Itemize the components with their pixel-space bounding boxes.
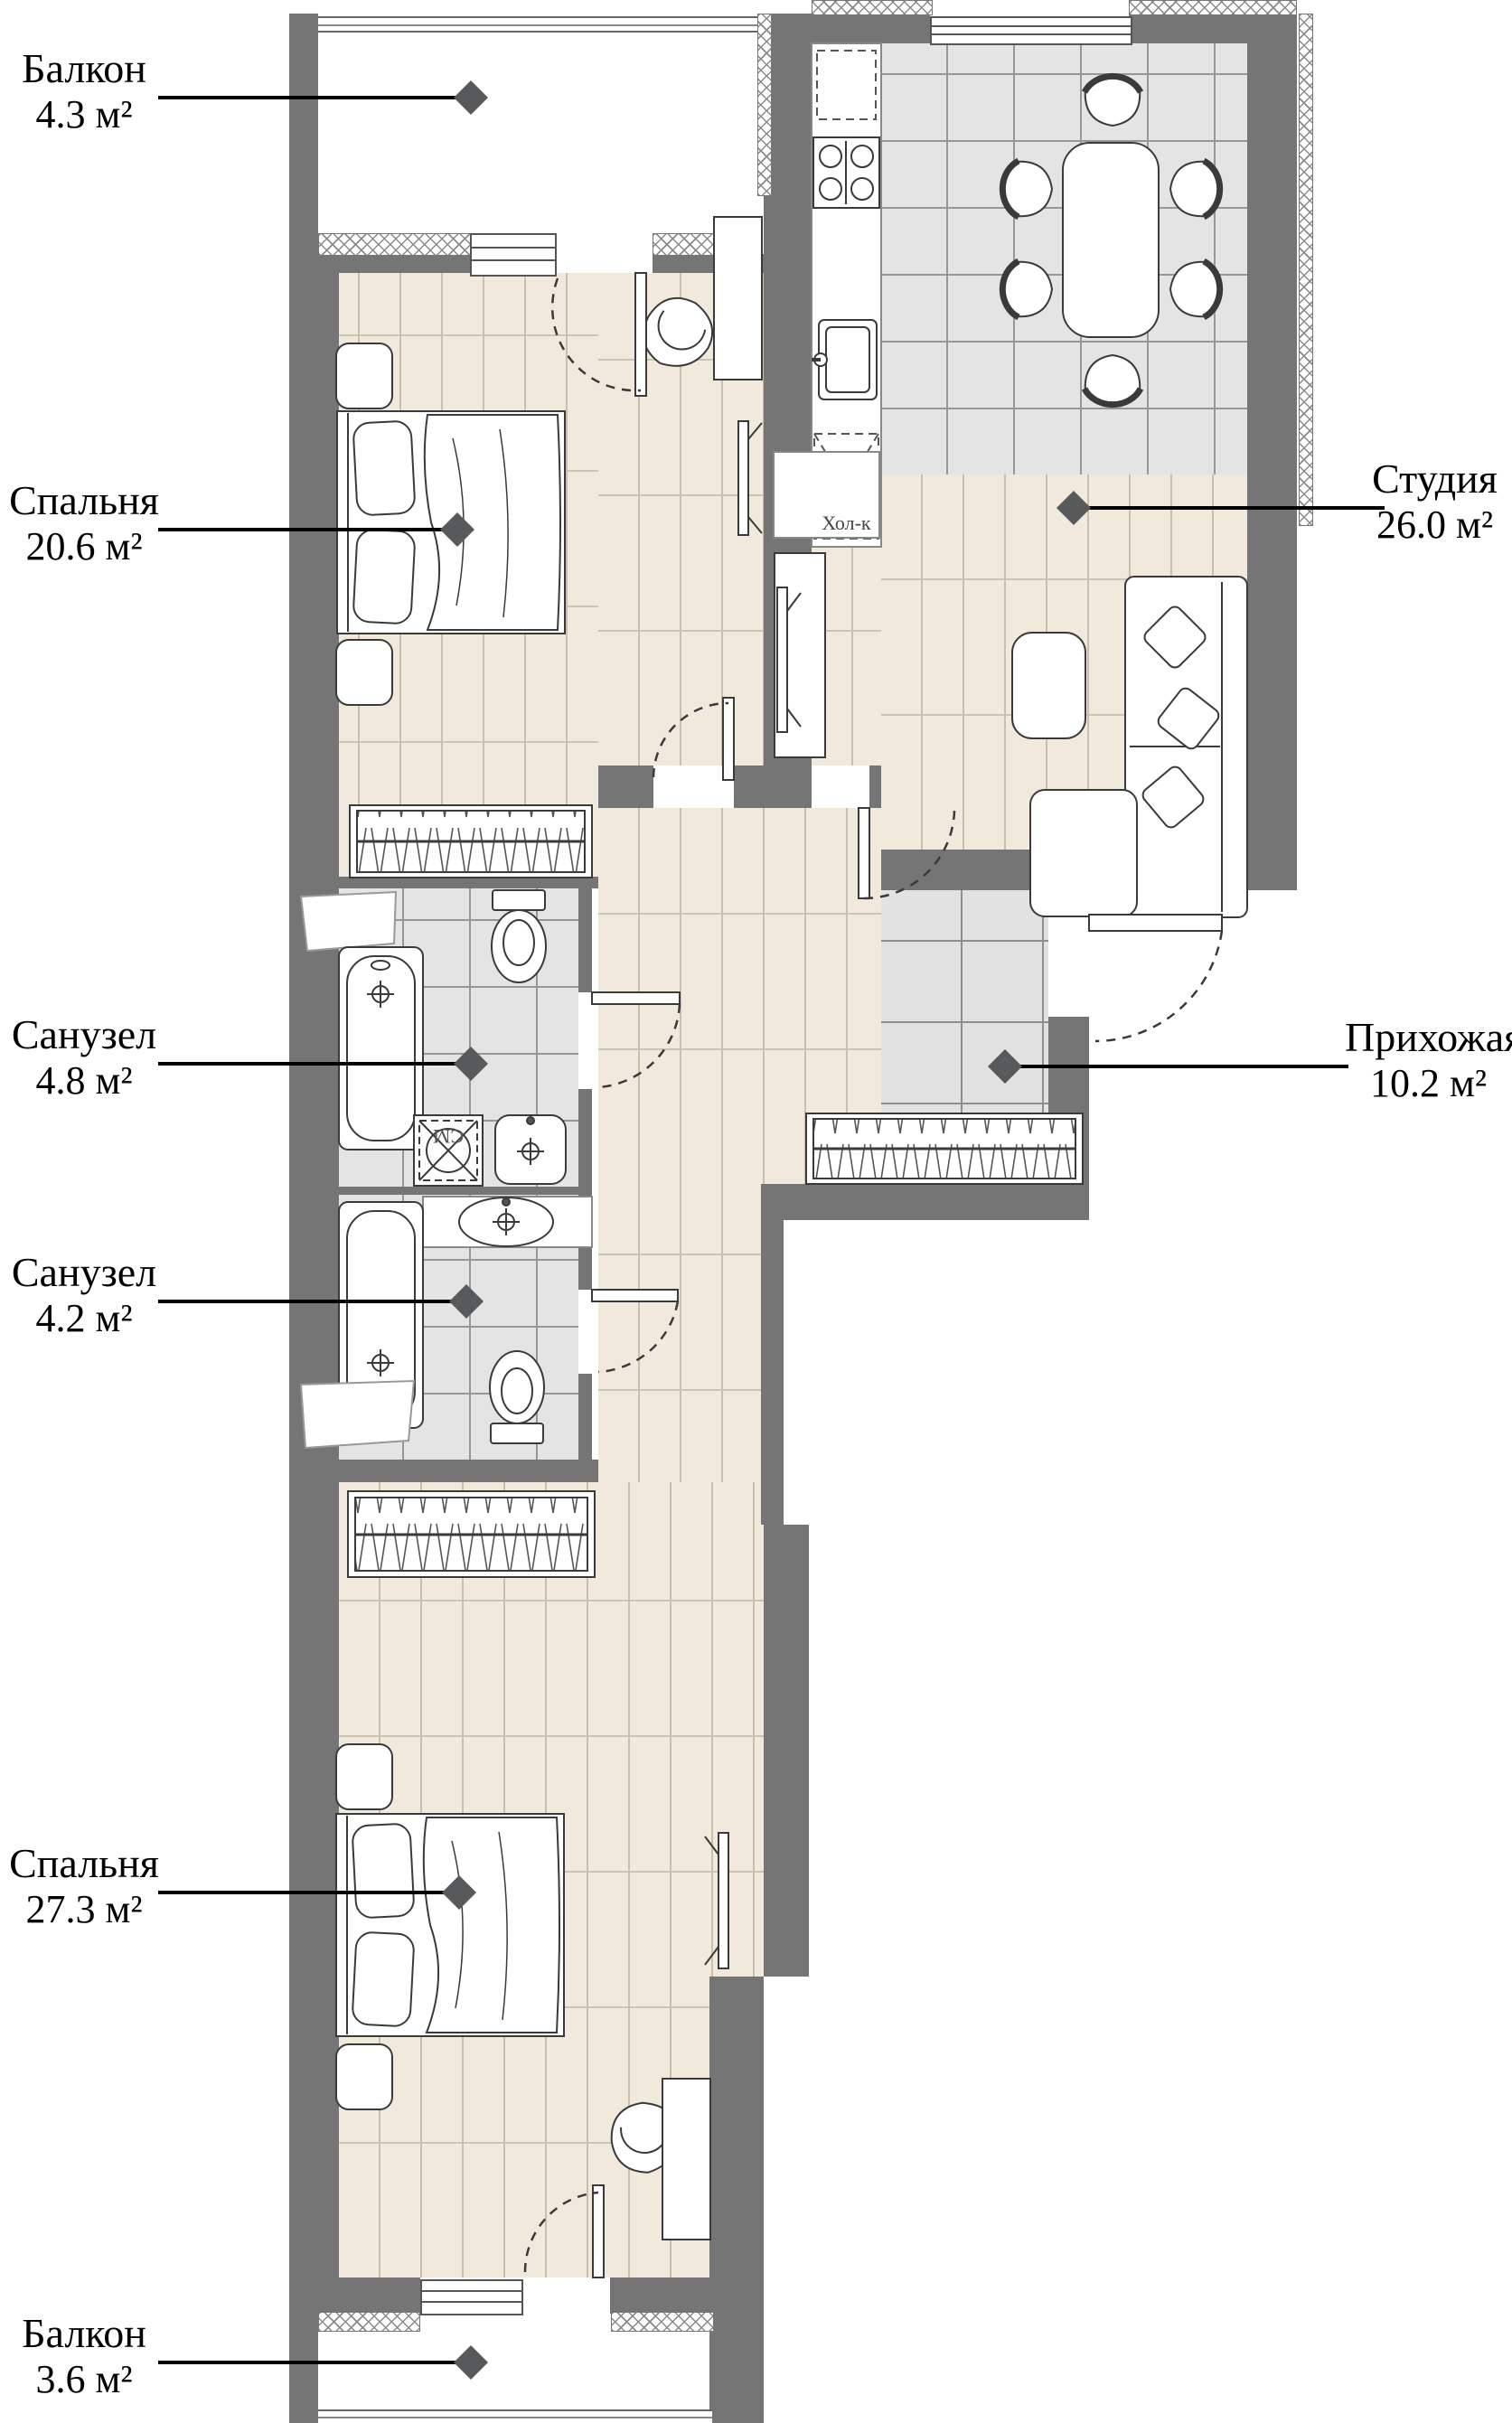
shelf-symbol (301, 892, 396, 951)
appliance-symbol (817, 51, 876, 119)
chair-symbol (1085, 355, 1141, 405)
door (552, 273, 646, 396)
bathroom-2-symbols (301, 1197, 678, 1448)
dining-table-symbol (1063, 143, 1159, 337)
room-label-hallway: Прихожая 10.2 м² (1345, 1014, 1512, 1105)
chair-symbol (1002, 261, 1052, 317)
desk-symbol (714, 217, 762, 380)
room-label-bedroom-top: Спальня 20.6 м² (7, 477, 161, 568)
room-name: Спальня (7, 1840, 161, 1887)
toilet-symbol (490, 1351, 544, 1443)
armchair-symbol (634, 289, 721, 377)
fridge-label: Хол-к (812, 512, 881, 535)
coffee-table-symbol (1012, 633, 1085, 738)
room-area: 10.2 м² (1345, 1061, 1512, 1105)
room-area: 26.0 м² (1357, 502, 1512, 547)
bed-symbol (336, 1814, 564, 2036)
chair-symbol (1170, 161, 1220, 217)
room-marker (1057, 491, 1091, 525)
room-marker (454, 1047, 488, 1081)
tv-symbol (705, 1833, 728, 1968)
room-label-bathroom-2: Санузел 4.2 м² (7, 1249, 161, 1340)
room-area: 27.3 м² (7, 1887, 161, 1931)
bedroom-bottom-furniture (336, 1744, 728, 2240)
chair-symbol (1002, 161, 1052, 217)
room-area: 4.2 м² (7, 1296, 161, 1340)
wardrobe-symbol (806, 1113, 1083, 1184)
doors (525, 273, 1222, 2277)
room-marker (454, 80, 488, 115)
chair-symbol (1085, 76, 1141, 126)
nightstand-symbol (336, 1744, 392, 1809)
room-label-balcony-bottom: Балкон 3.6 м² (7, 2310, 161, 2401)
room-marker (454, 2345, 488, 2380)
wardrobe-symbol (348, 1491, 595, 1577)
room-name: Спальня (7, 477, 161, 524)
bathroom-1-symbols (301, 890, 680, 1186)
room-name: Санузел (7, 1249, 161, 1296)
bedroom-top-furniture (336, 217, 762, 705)
nightstand-symbol (336, 343, 392, 409)
door (859, 808, 954, 898)
plan-symbols-layer: СМ (0, 0, 1512, 2423)
bathtub-symbol (339, 947, 423, 1150)
room-area: 3.6 м² (7, 2357, 161, 2401)
nightstand-symbol (336, 2044, 392, 2109)
room-marker (449, 1284, 484, 1319)
chair-symbol (1170, 261, 1220, 317)
room-label-bedroom-bottom: Спальня 27.3 м² (7, 1840, 161, 1931)
room-label-bathroom-1: Санузел 4.8 м² (7, 1011, 161, 1103)
room-name: Прихожая (1345, 1014, 1512, 1061)
room-label-studio: Студия 26.0 м² (1357, 455, 1512, 547)
toilet-symbol (492, 890, 546, 982)
floor-plan-canvas: СМ Балкон 4.3 м² Спальня 20.6 (0, 0, 1512, 2423)
room-name: Санузел (7, 1011, 161, 1058)
door (592, 992, 680, 1087)
shelf-symbol (301, 1381, 414, 1448)
door (653, 698, 734, 780)
room-name: Балкон (7, 2310, 161, 2357)
room-area: 20.6 м² (7, 524, 161, 568)
room-area: 4.3 м² (7, 92, 161, 136)
door (525, 2185, 604, 2277)
washer-label: СМ (433, 1125, 464, 1148)
tv-symbol (738, 421, 762, 535)
entry-door (1089, 915, 1222, 1041)
desk-symbol (662, 2079, 710, 2240)
room-name: Балкон (7, 45, 161, 92)
wardrobe-symbol (350, 805, 592, 878)
nightstand-symbol (336, 640, 392, 705)
door (592, 1290, 678, 1372)
stove-symbol (813, 137, 879, 208)
room-label-balcony-top: Балкон 4.3 м² (7, 45, 161, 136)
room-name: Студия (1357, 455, 1512, 502)
room-marker (988, 1049, 1022, 1084)
room-area: 4.8 м² (7, 1058, 161, 1103)
sofa-symbol (1030, 577, 1247, 917)
kitchen-sink-symbol (812, 320, 877, 399)
